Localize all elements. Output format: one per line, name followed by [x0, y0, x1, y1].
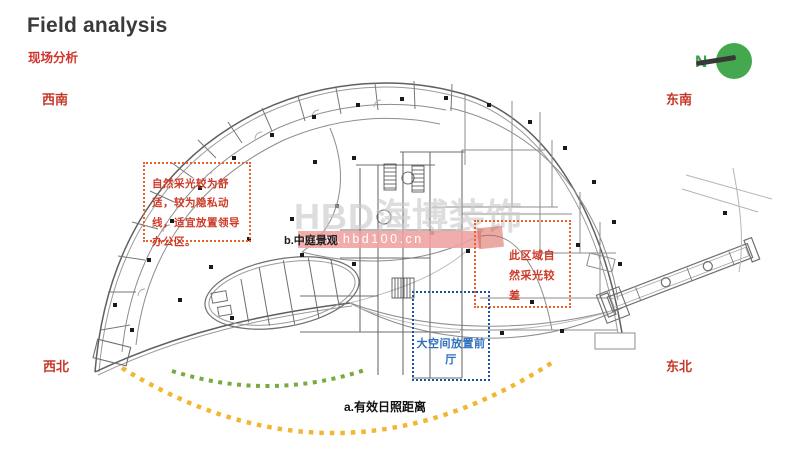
slide: HBD海博装饰 www.hbd100.cn Field analysis 现场分… — [0, 0, 800, 450]
north-compass-icon — [694, 40, 774, 88]
note-poor-daylight-text: 此区域自然采光较差 — [509, 247, 559, 306]
note-exhibition-lobby-text: 大空间放置前厅 — [414, 335, 488, 367]
sunshine-arcs — [0, 0, 800, 450]
note-leader-office-area: 自然采光较为舒适，较为隐私动线，适宜放置领导办公区。 — [143, 162, 251, 242]
note-exhibition-lobby-area: 大空间放置前厅 — [412, 291, 490, 381]
atrium-view-label: b.中庭景观 — [284, 232, 338, 248]
effective-sunshine-label: a.有效日照距离 — [344, 398, 426, 415]
green-sunshine-arc — [172, 369, 368, 386]
